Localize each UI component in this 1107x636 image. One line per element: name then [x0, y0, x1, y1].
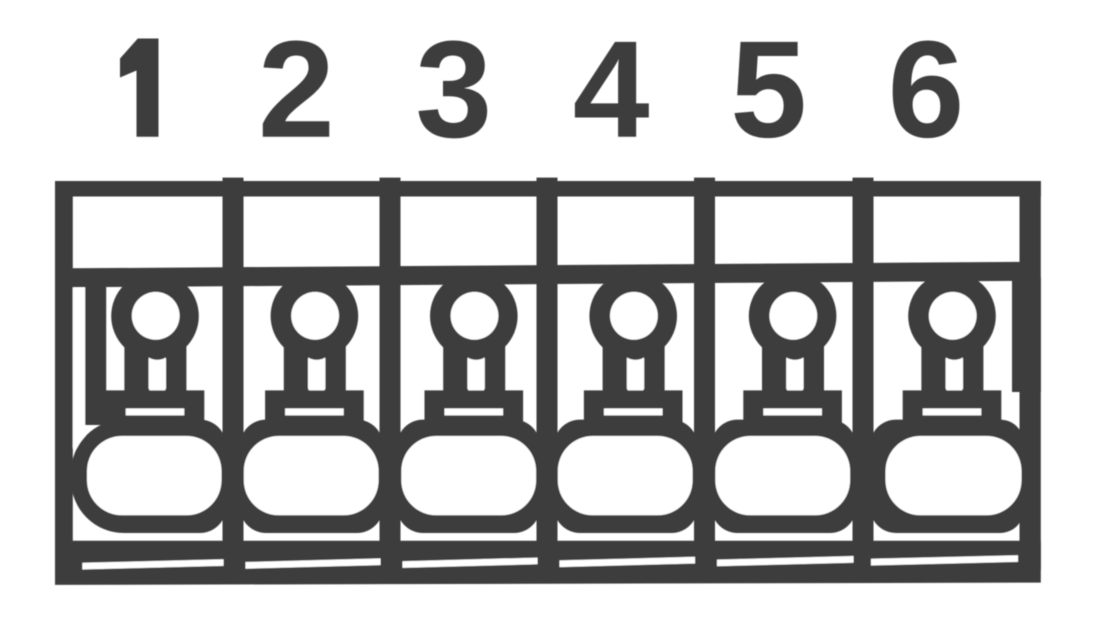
svg-text:2: 2 — [258, 13, 335, 167]
svg-text:3: 3 — [415, 13, 492, 167]
svg-text:5: 5 — [730, 13, 807, 167]
svg-text:4: 4 — [573, 13, 650, 167]
svg-text:6: 6 — [888, 13, 965, 167]
